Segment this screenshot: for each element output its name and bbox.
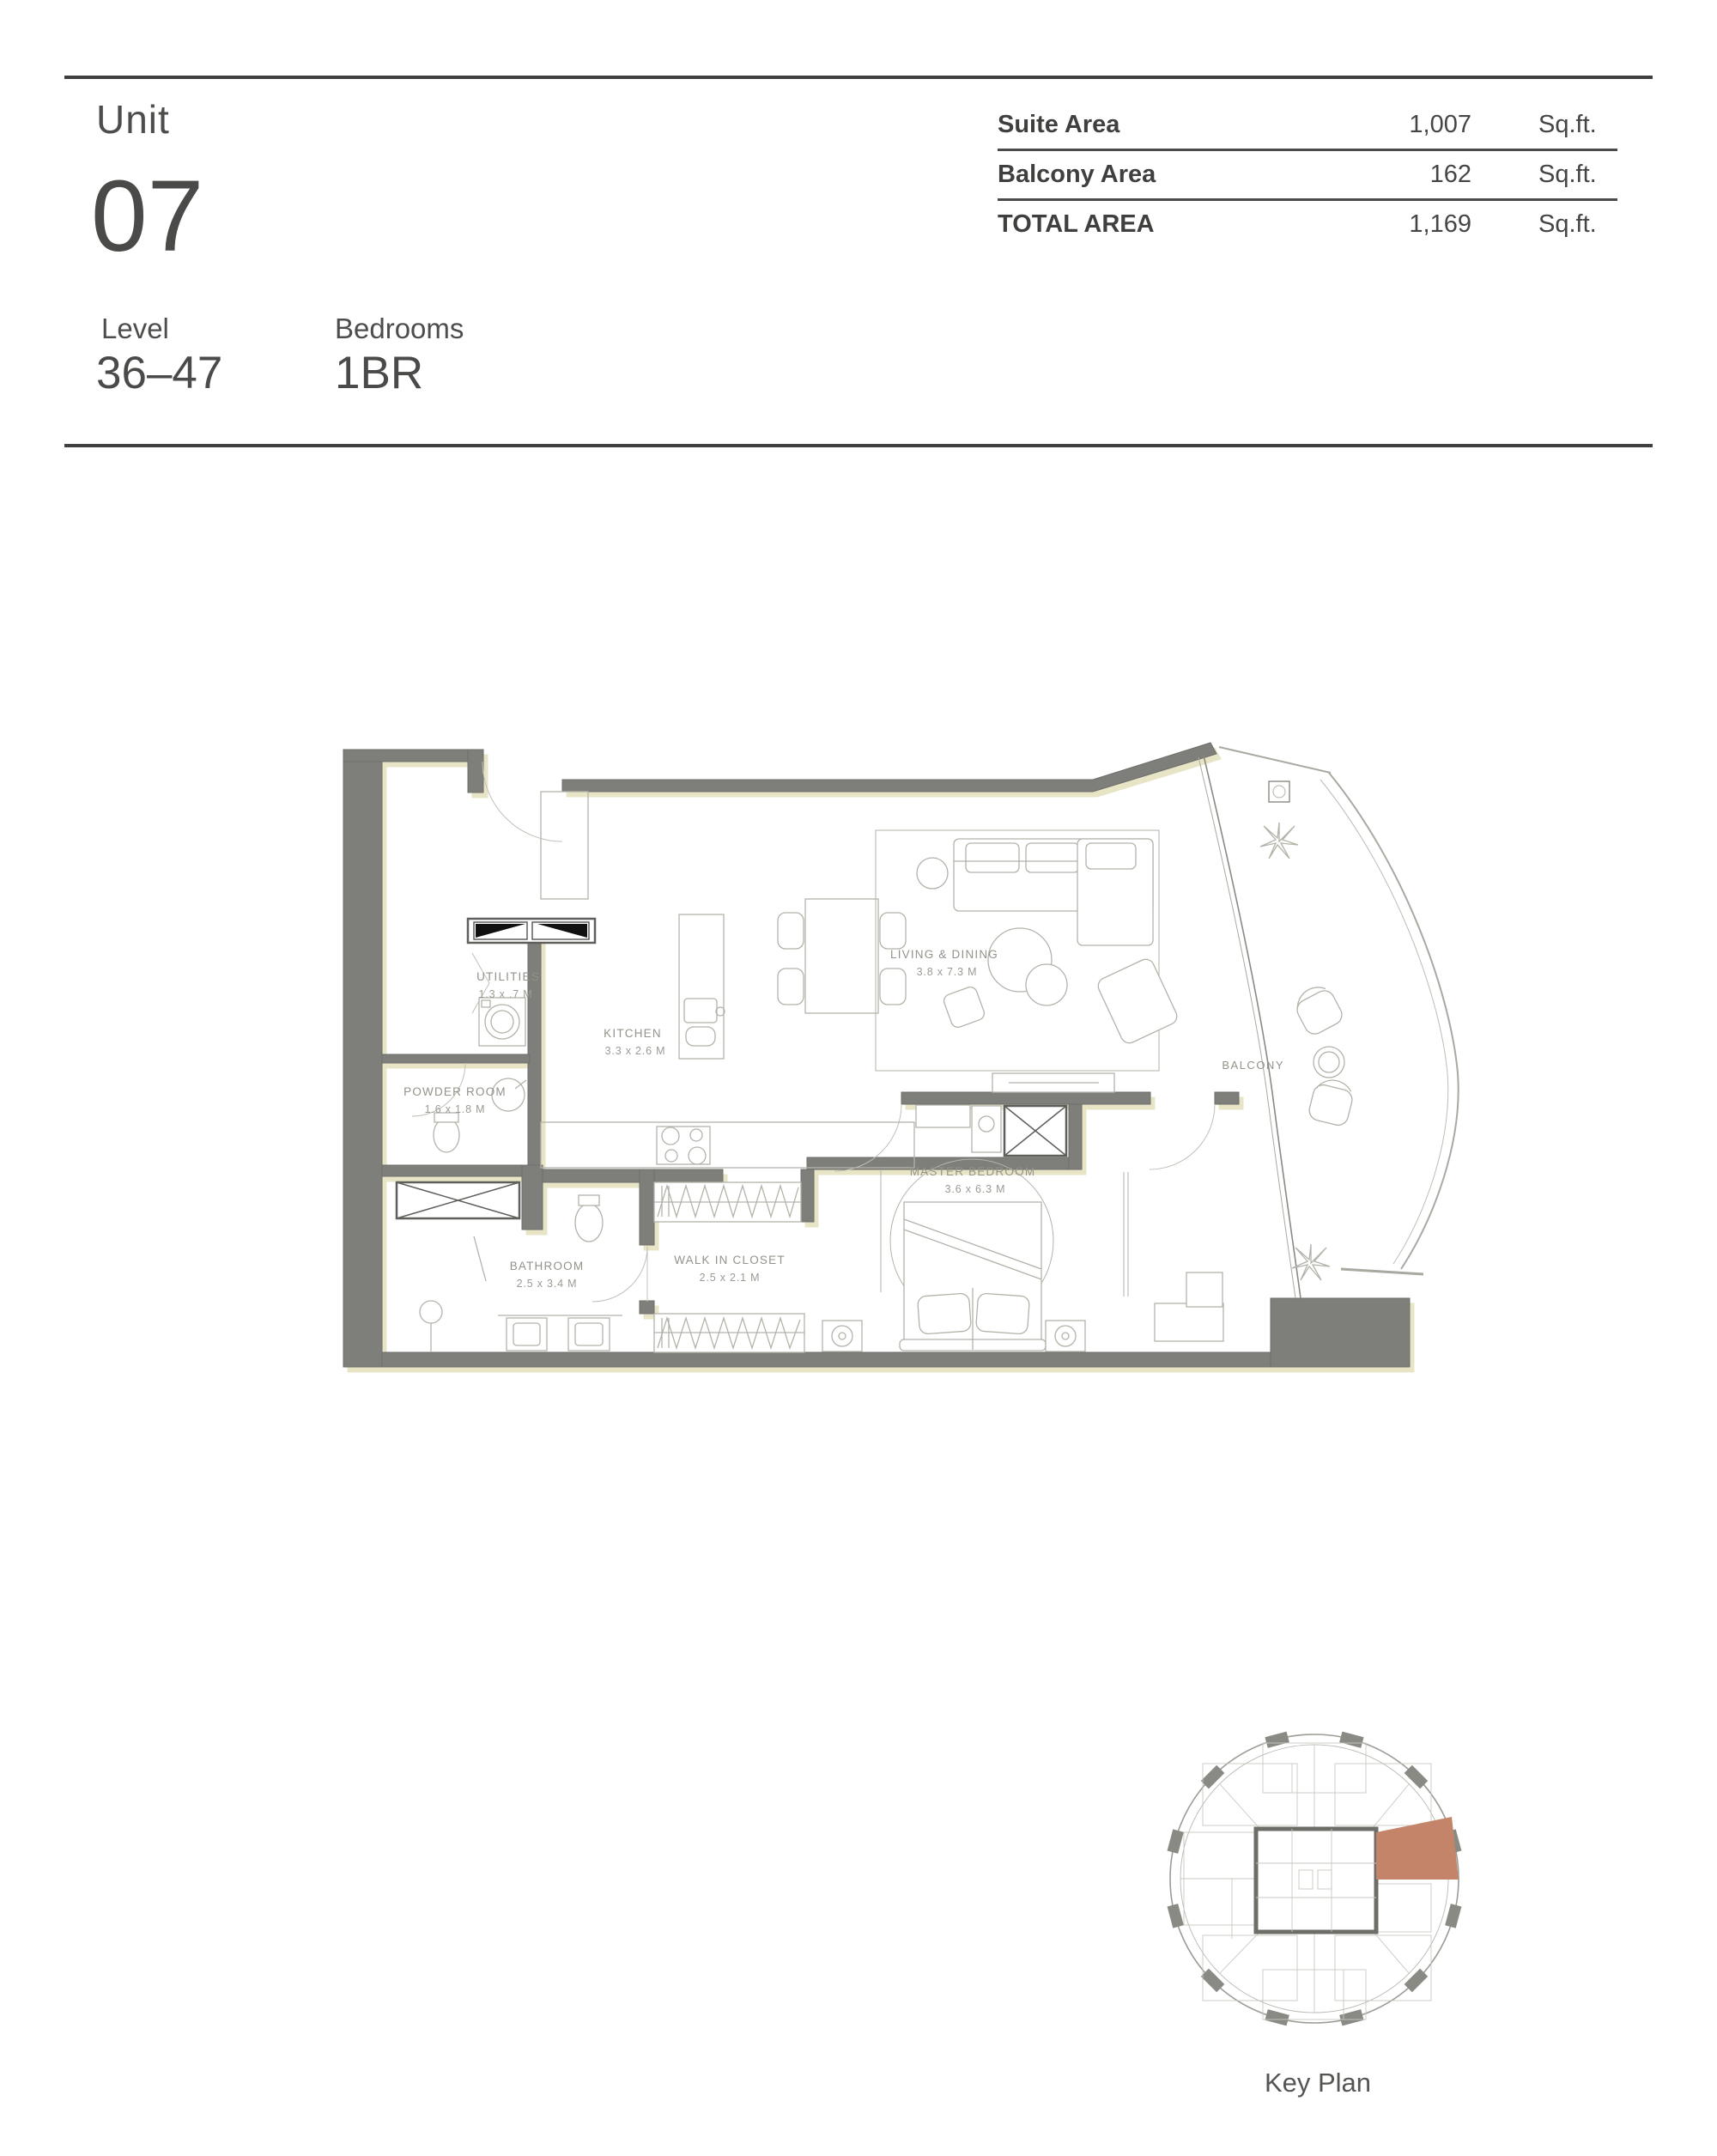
balcony-furniture	[1260, 823, 1354, 1280]
walls	[343, 743, 1410, 1367]
header-bottom-rule	[64, 444, 1653, 447]
washing-machine	[479, 998, 525, 1046]
label-walk-in-closet: WALK IN CLOSET	[674, 1254, 786, 1266]
living-furniture	[876, 830, 1180, 1127]
dims-kitchen: 3.3 x 2.6 M	[605, 1045, 666, 1057]
bedrooms-value: 1BR	[335, 347, 423, 399]
label-utilities: UTILITIES	[476, 970, 540, 983]
balcony-area-label: Balcony Area	[998, 161, 1317, 189]
label-living-dining: LIVING & DINING	[890, 948, 998, 961]
dims-bathroom: 2.5 x 3.4 M	[517, 1278, 578, 1290]
table-row-suite-area: Suite Area 1,007 Sq.ft.	[998, 101, 1617, 151]
linen-closet	[397, 1182, 519, 1218]
service-shafts	[972, 1106, 1066, 1156]
suite-area-label: Suite Area	[998, 111, 1317, 139]
label-balcony: BALCONY	[1222, 1059, 1284, 1072]
unit-label: Unit	[96, 96, 170, 143]
balcony-area-value: 162	[1317, 161, 1471, 189]
dims-walk-in-closet: 2.5 x 2.1 M	[700, 1272, 761, 1284]
bedroom-furniture	[822, 1159, 1223, 1351]
top-rule	[64, 76, 1653, 79]
label-master-bedroom: MASTER BEDROOM	[910, 1165, 1036, 1178]
suite-area-value: 1,007	[1317, 111, 1471, 139]
level-label: Level	[101, 313, 169, 345]
key-plan	[1120, 1681, 1515, 2085]
level-value: 36–47	[96, 347, 222, 399]
label-kitchen: KITCHEN	[604, 1027, 662, 1040]
table-row-total-area: TOTAL AREA 1,169 Sq.ft.	[998, 201, 1617, 248]
core	[1256, 1829, 1376, 1932]
plant-top	[1260, 823, 1298, 859]
total-area-value: 1,169	[1317, 210, 1471, 239]
dims-living-dining: 3.8 x 7.3 M	[917, 966, 978, 978]
closet-racks	[654, 1182, 804, 1352]
dims-powder-room: 1.6 x 1.8 M	[425, 1103, 486, 1115]
label-bathroom: BATHROOM	[510, 1260, 585, 1272]
dims-master-bedroom: 3.6 x 6.3 M	[945, 1183, 1006, 1195]
dining-set	[778, 899, 906, 1013]
total-area-unit: Sq.ft.	[1471, 210, 1617, 239]
area-table: Suite Area 1,007 Sq.ft. Balcony Area 162…	[998, 101, 1617, 248]
suite-area-unit: Sq.ft.	[1471, 111, 1617, 139]
brochure-page: { "header": { "unit_label": "Unit", "uni…	[0, 0, 1717, 2156]
bedrooms-label: Bedrooms	[335, 313, 464, 345]
balcony-area-unit: Sq.ft.	[1471, 161, 1617, 189]
total-area-label: TOTAL AREA	[998, 210, 1317, 239]
table-row-balcony-area: Balcony Area 162 Sq.ft.	[998, 151, 1617, 201]
label-powder-room: POWDER ROOM	[403, 1085, 507, 1098]
floor-plan: UTILITIES 1.3 x .7 M KITCHEN 3.3 x 2.6 M…	[326, 738, 1494, 1425]
duct-shafts	[468, 919, 595, 943]
key-plan-caption: Key Plan	[1120, 2068, 1515, 2098]
unit-number: 07	[91, 161, 203, 273]
dims-utilities: 1.3 x .7 M	[479, 988, 533, 1000]
